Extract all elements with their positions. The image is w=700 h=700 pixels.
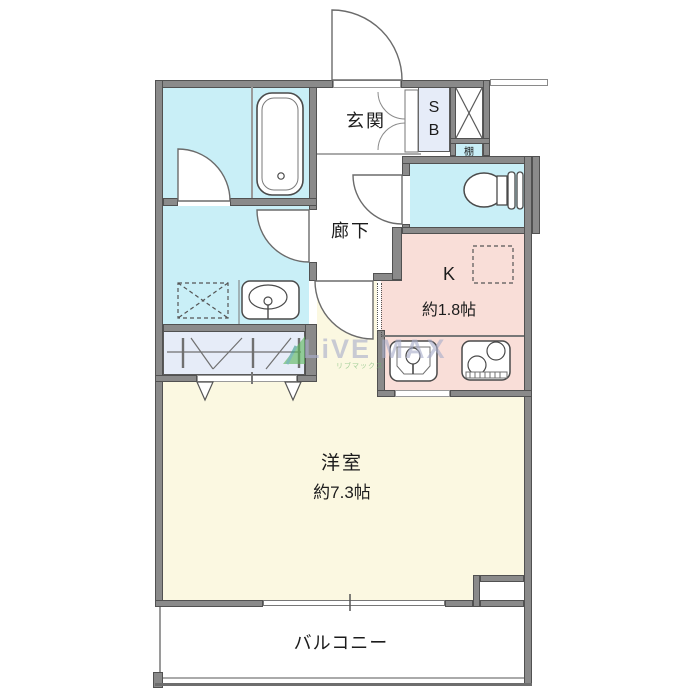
bathtub-divider-line (251, 87, 253, 198)
shoe-box-label: B (429, 120, 440, 142)
wall (377, 390, 395, 397)
kitchen-open-boundary-dotted (381, 283, 382, 337)
wall (392, 227, 402, 280)
genkan-step-line (317, 153, 421, 155)
room-label-genkan: 玄関 (336, 107, 396, 133)
kitchen-opening (395, 390, 450, 397)
balcony-rail-line (155, 683, 532, 686)
wall (480, 600, 524, 607)
wall (163, 324, 309, 332)
wall (480, 575, 524, 582)
balcony-rail-line (163, 677, 524, 679)
room-toilet (410, 164, 524, 227)
balcony-side-line (159, 607, 161, 673)
entrance-door-arc (332, 10, 402, 80)
shelf: 棚 (455, 143, 483, 157)
neighbor-boundary-line (490, 79, 548, 86)
shoe-box-door-leaf (405, 90, 418, 152)
room-bathroom (163, 87, 317, 198)
wall (230, 198, 317, 206)
watermark-furigana: リブマックス (336, 361, 396, 371)
room-washroom (163, 206, 309, 324)
kitchen-open-boundary-dotted (377, 283, 378, 337)
wall (155, 80, 333, 88)
room-kitchen (402, 234, 524, 280)
wall (483, 80, 490, 156)
wall (450, 390, 532, 397)
wall (297, 375, 317, 382)
closet-opening-tick (251, 372, 253, 384)
room-label-kitchen: K (437, 264, 461, 285)
wall (450, 138, 490, 144)
closet-opening (197, 375, 297, 382)
wall (450, 87, 456, 156)
room-label-western: 洋室 (292, 448, 392, 475)
shoe-box-label: S (429, 97, 440, 119)
wall (524, 156, 532, 686)
wall (163, 198, 178, 206)
room-label-balcony: バルコニー (267, 629, 415, 655)
floor-plan: S B 棚 (0, 0, 700, 700)
wall (473, 575, 480, 607)
shoe-box: S B (418, 87, 450, 152)
entrance-opening (333, 80, 401, 88)
wall (532, 156, 540, 234)
wall-niche (480, 582, 524, 600)
room-size-western: 約7.3帖 (292, 478, 392, 503)
wall (155, 375, 197, 382)
wall (309, 262, 317, 281)
pipe-shaft (455, 87, 483, 139)
wall (155, 80, 163, 607)
room-size-kitchen: 約1.8帖 (402, 296, 496, 320)
wall (445, 600, 473, 607)
room-label-hallway: 廊下 (322, 217, 380, 243)
wall (155, 600, 263, 607)
wall (401, 80, 490, 88)
wall (402, 227, 532, 234)
wall (309, 87, 317, 210)
window-sliding-door (263, 600, 445, 606)
wall (402, 156, 540, 164)
